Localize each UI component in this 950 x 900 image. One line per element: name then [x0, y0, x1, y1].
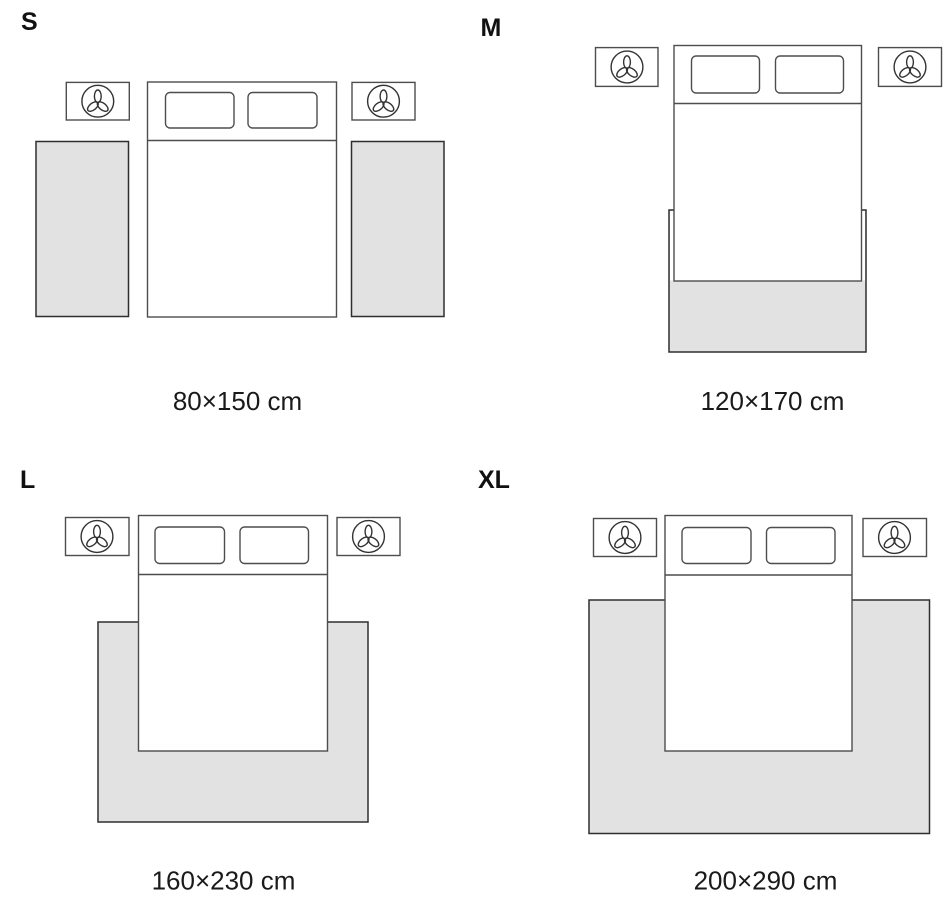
svg-text:120×170 cm: 120×170 cm — [701, 386, 845, 416]
svg-text:L: L — [20, 466, 35, 494]
svg-text:160×230 cm: 160×230 cm — [152, 865, 296, 895]
svg-text:80×150 cm: 80×150 cm — [173, 386, 302, 416]
svg-text:M: M — [481, 14, 502, 42]
svg-text:200×290 cm: 200×290 cm — [694, 865, 838, 895]
svg-text:XL: XL — [478, 466, 510, 494]
svg-text:S: S — [21, 8, 38, 36]
